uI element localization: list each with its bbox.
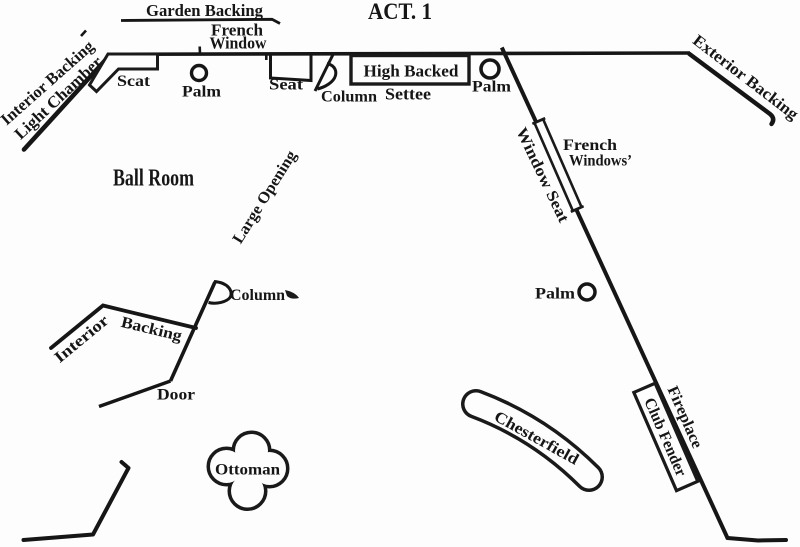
svg-text:Palm: Palm [472,79,512,96]
svg-text:Column: Column [321,89,377,106]
svg-text:Window: Window [210,34,267,53]
svg-text:Garden Backing: Garden Backing [146,1,263,20]
svg-text:Ottoman: Ottoman [215,462,280,479]
svg-text:French: French [563,137,617,154]
svg-text:Door: Door [157,387,195,404]
svg-text:ACT. 1: ACT. 1 [368,0,432,24]
svg-text:Scat: Scat [117,73,151,90]
svg-text:Column: Column [230,287,285,304]
svg-text:Palm: Palm [182,84,222,101]
svg-text:Palm: Palm [535,286,576,303]
svg-text:High Backed: High Backed [364,62,460,81]
svg-text:Seat: Seat [269,77,304,94]
svg-text:Windows’: Windows’ [569,153,632,170]
svg-text:Settee: Settee [385,85,431,104]
svg-text:Ball Room: Ball Room [113,166,194,192]
